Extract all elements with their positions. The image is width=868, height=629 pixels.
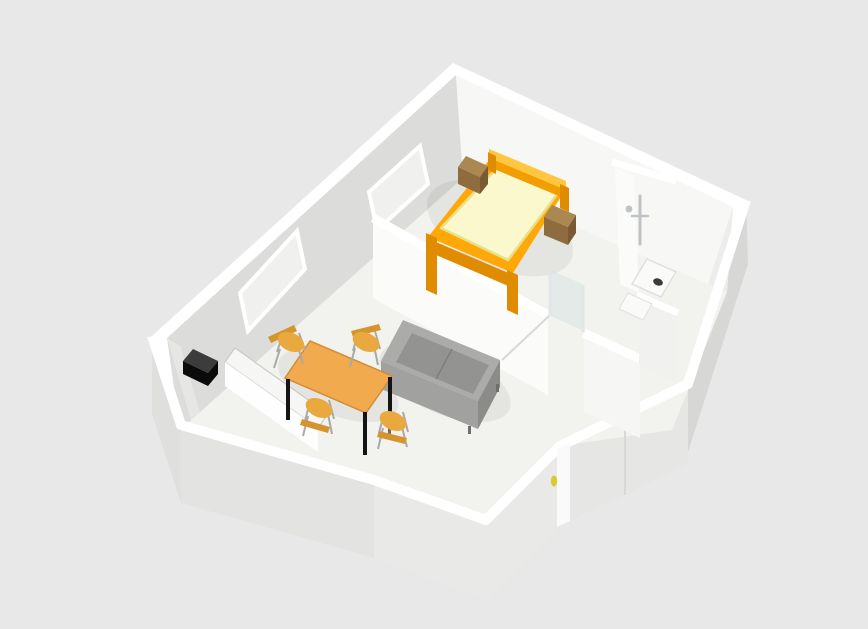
bed-post-head-right [560,184,569,212]
bed-post-foot-left [426,233,437,295]
door-handle [551,476,557,487]
door-frame-strip [557,443,570,527]
floorplan-3d-view [0,0,868,629]
table-leg-left [286,379,290,420]
sofa-leg [496,384,499,392]
table-leg-front [363,412,367,455]
bed-post-foot-right [507,270,518,315]
sofa-leg [468,426,471,434]
floorplan-svg [0,0,868,629]
shower-head [626,206,633,213]
